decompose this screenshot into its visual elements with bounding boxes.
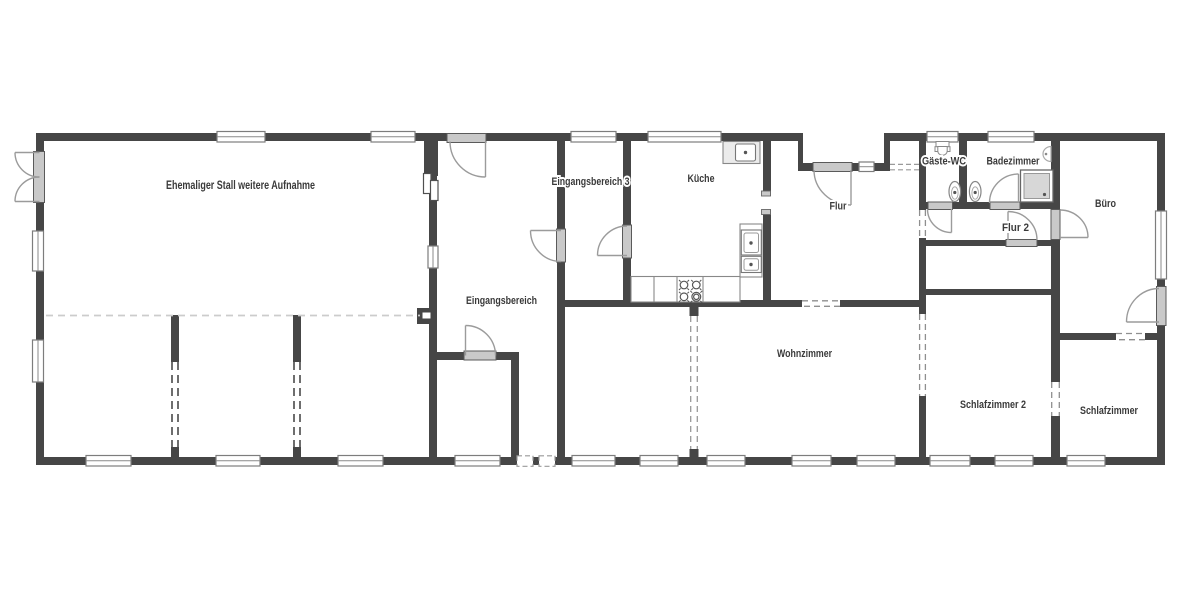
svg-text:Büro: Büro <box>1095 198 1116 210</box>
svg-text:Eingangsbereich 3: Eingangsbereich 3 <box>552 176 630 188</box>
svg-text:Flur 2: Flur 2 <box>1002 222 1029 234</box>
svg-text:Badezimmer: Badezimmer <box>987 156 1041 168</box>
svg-text:Flur: Flur <box>830 201 848 213</box>
svg-text:Gäste-WC: Gäste-WC <box>922 156 966 168</box>
svg-text:Ehemaliger Stall weitere Aufna: Ehemaliger Stall weitere Aufnahme <box>166 180 315 192</box>
svg-text:Schlafzimmer 2: Schlafzimmer 2 <box>960 399 1026 411</box>
svg-text:Wohnzimmer: Wohnzimmer <box>777 348 833 360</box>
svg-text:Eingangsbereich: Eingangsbereich <box>466 295 537 307</box>
svg-text:Schlafzimmer: Schlafzimmer <box>1080 405 1139 417</box>
svg-text:Küche: Küche <box>688 173 715 185</box>
